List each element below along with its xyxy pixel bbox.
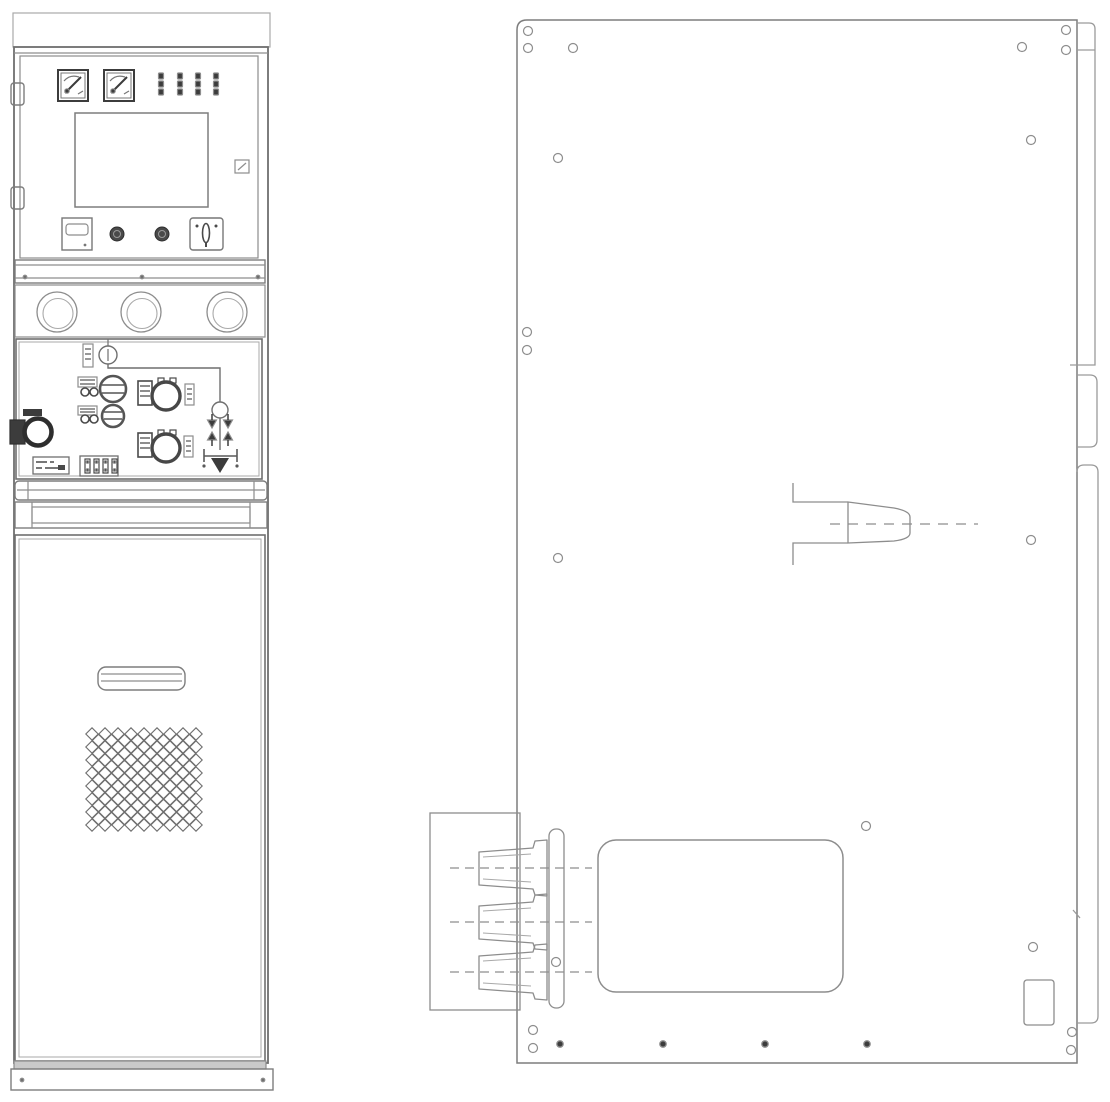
mesh-diamond — [151, 728, 163, 740]
mounting-hole — [529, 1044, 538, 1053]
screw-dot — [256, 275, 260, 279]
mesh-diamond — [92, 812, 104, 824]
status-label-1 — [78, 377, 97, 387]
pushbutton — [155, 227, 169, 241]
mesh-diamond — [144, 734, 156, 746]
mesh-diamond — [112, 741, 124, 753]
mesh-diamond — [183, 760, 195, 772]
operating-shaft-port — [100, 376, 126, 402]
mesh-diamond — [144, 747, 156, 759]
mesh-diamond — [112, 754, 124, 766]
arrow-down — [208, 420, 217, 428]
mesh-diamond — [190, 728, 202, 740]
label-plate-vertical — [83, 344, 93, 367]
mesh-diamond — [105, 760, 117, 772]
hinge — [11, 187, 24, 209]
mesh-diamond — [177, 793, 189, 805]
mesh-diamond — [99, 767, 111, 779]
terminal-dot — [113, 461, 116, 464]
ventilation-grille — [86, 728, 202, 831]
mesh-diamond — [105, 786, 117, 798]
viewing-window-inner — [127, 299, 157, 329]
mesh-diamond — [138, 819, 150, 831]
mounting-hole — [554, 554, 563, 563]
mesh-diamond — [190, 767, 202, 779]
mesh-diamond — [131, 773, 143, 785]
mesh-diamond — [99, 754, 111, 766]
mesh-diamond — [144, 799, 156, 811]
status-label-2 — [78, 406, 97, 415]
indicator-light — [159, 89, 164, 95]
rear-flange — [1070, 23, 1098, 1023]
mesh-diamond — [144, 760, 156, 772]
indicator-light — [196, 73, 201, 79]
mounting-hole — [1018, 43, 1027, 52]
mesh-diamond — [112, 767, 124, 779]
mesh-diamond — [138, 767, 150, 779]
mesh-diamond — [183, 799, 195, 811]
mesh-diamond — [118, 760, 130, 772]
mesh-diamond — [112, 793, 124, 805]
indicator-light — [159, 73, 164, 79]
mounting-hole — [1062, 26, 1071, 35]
front-view — [10, 13, 273, 1090]
mesh-diamond — [125, 767, 137, 779]
mesh-diamond — [138, 754, 150, 766]
screw-dot — [140, 275, 144, 279]
mesh-diamond — [86, 793, 98, 805]
mesh-diamond — [170, 786, 182, 798]
mounting-hole — [552, 958, 561, 967]
meter-tick — [78, 91, 83, 94]
operating-mechanism — [138, 378, 180, 410]
cabinet-base-edge — [14, 1061, 266, 1069]
mesh-diamond — [86, 754, 98, 766]
mounting-hole — [862, 822, 871, 831]
terminal-dot — [86, 469, 89, 472]
mesh-diamond — [112, 728, 124, 740]
viewing-window-inner — [213, 299, 243, 329]
mesh-diamond — [99, 780, 111, 792]
mesh-diamond — [177, 754, 189, 766]
indicator-light — [178, 89, 183, 95]
mesh-diamond — [177, 819, 189, 831]
key-switch — [190, 218, 223, 250]
mesh-diamond — [99, 819, 111, 831]
inspection-cover — [598, 840, 843, 992]
mesh-diamond — [86, 741, 98, 753]
operating-mechanism — [138, 430, 180, 462]
mesh-diamond — [86, 780, 98, 792]
mesh-diamond — [190, 741, 202, 753]
mesh-diamond — [86, 819, 98, 831]
mesh-diamond — [170, 812, 182, 824]
mounting-hole — [1062, 46, 1071, 55]
meter-hub — [65, 89, 69, 93]
mesh-diamond — [131, 760, 143, 772]
top-plate — [13, 13, 270, 47]
mounting-hole — [1067, 1046, 1076, 1055]
mesh-diamond — [99, 806, 111, 818]
arrow-down — [224, 420, 233, 428]
lock-insert-mark — [238, 163, 246, 170]
mesh-diamond — [138, 793, 150, 805]
mesh-diamond — [92, 786, 104, 798]
lower-door-inner — [19, 539, 261, 1057]
mesh-diamond — [118, 812, 130, 824]
fixing-dot — [864, 1041, 870, 1047]
mesh-diamond — [144, 773, 156, 785]
mesh-diamond — [170, 747, 182, 759]
front-band — [15, 260, 265, 283]
mesh-diamond — [151, 780, 163, 792]
cable-bushing-centerlines — [450, 868, 592, 972]
mesh-diamond — [164, 793, 176, 805]
earth-symbol — [211, 458, 229, 473]
screw-dot — [261, 1078, 265, 1082]
terminal-dot — [86, 461, 89, 464]
indicator-light — [214, 89, 219, 95]
mesh-diamond — [190, 793, 202, 805]
door-hinges — [11, 83, 24, 209]
mesh-diamond — [170, 734, 182, 746]
mesh-diamond — [105, 799, 117, 811]
cable-compartment-box — [430, 813, 520, 1010]
arrow-up — [208, 432, 217, 440]
mesh-diamond — [157, 812, 169, 824]
status-lamp — [81, 415, 89, 423]
energy-meter-display — [66, 224, 88, 235]
fixing-dot — [660, 1041, 666, 1047]
mesh-diamond — [170, 773, 182, 785]
side-bushing-cone — [848, 502, 910, 543]
terminal-strip — [80, 456, 118, 476]
arrow-up — [224, 432, 233, 440]
mesh-diamond — [170, 760, 182, 772]
mesh-diamond — [151, 806, 163, 818]
mesh-diamond — [125, 741, 137, 753]
drawing-canvas — [0, 0, 1110, 1102]
mesh-diamond — [112, 806, 124, 818]
mesh-diamond — [99, 728, 111, 740]
indicator-light — [178, 81, 183, 87]
status-lamp — [90, 388, 98, 396]
mesh-diamond — [157, 773, 169, 785]
mesh-diamond — [131, 734, 143, 746]
mesh-diamond — [144, 786, 156, 798]
mesh-diamond — [177, 806, 189, 818]
mesh-diamond — [92, 773, 104, 785]
indicator-light — [214, 81, 219, 87]
mounting-hole — [1029, 943, 1038, 952]
mesh-diamond — [144, 812, 156, 824]
mesh-diamond — [164, 741, 176, 753]
terminal-dot — [113, 469, 116, 472]
mesh-diamond — [118, 799, 130, 811]
mesh-diamond — [92, 799, 104, 811]
mesh-diamond — [105, 812, 117, 824]
pushbuttons — [110, 227, 169, 241]
viewing-window-inner — [43, 299, 73, 329]
terminal-dot — [104, 461, 107, 464]
mesh-diamond — [164, 728, 176, 740]
mounting-hole — [524, 27, 533, 36]
mesh-diamond — [125, 780, 137, 792]
terminal-dot — [95, 461, 98, 464]
mesh-diamond — [151, 767, 163, 779]
indicator-light — [159, 81, 164, 87]
mesh-diamond — [177, 780, 189, 792]
mesh-diamond — [138, 806, 150, 818]
mesh-diamond — [125, 754, 137, 766]
mesh-diamond — [112, 780, 124, 792]
mesh-diamond — [164, 754, 176, 766]
nameplate — [33, 457, 69, 474]
mesh-diamond — [131, 747, 143, 759]
cabinet-outline — [14, 47, 268, 1063]
hinge — [11, 83, 24, 105]
mesh-diamond — [138, 780, 150, 792]
handle-recess — [15, 481, 267, 528]
mesh-diamond — [157, 799, 169, 811]
mesh-diamond — [177, 728, 189, 740]
screw-dot — [20, 1078, 24, 1082]
panel-meters — [58, 70, 134, 101]
fixing-dot — [762, 1041, 768, 1047]
status-lamp — [90, 415, 98, 423]
mounting-hole — [529, 1026, 538, 1035]
side-panel-outline — [517, 20, 1077, 1063]
mesh-diamond — [164, 767, 176, 779]
mesh-diamond — [118, 773, 130, 785]
mesh-diamond — [92, 747, 104, 759]
mesh-diamond — [164, 780, 176, 792]
mesh-diamond — [112, 819, 124, 831]
cable-bushings — [479, 840, 547, 1000]
mesh-diamond — [170, 799, 182, 811]
mesh-diamond — [157, 747, 169, 759]
mounting-hole — [1027, 536, 1036, 545]
mesh-diamond — [151, 754, 163, 766]
mesh-diamond — [131, 812, 143, 824]
mesh-diamond — [190, 754, 202, 766]
cable-bushing-line — [483, 854, 531, 882]
mesh-diamond — [190, 806, 202, 818]
mesh-diamond — [138, 728, 150, 740]
mesh-diamond — [183, 812, 195, 824]
mounting-hole — [524, 44, 533, 53]
lower-door — [15, 535, 265, 1061]
plinth-screws — [20, 1078, 265, 1082]
mesh-diamond — [183, 747, 195, 759]
mesh-diamond — [125, 819, 137, 831]
viewing-windows — [37, 292, 247, 332]
terminal-dot — [95, 469, 98, 472]
mesh-diamond — [118, 747, 130, 759]
mesh-diamond — [118, 786, 130, 798]
mesh-diamond — [177, 741, 189, 753]
indicator-lights — [159, 73, 219, 95]
mesh-diamond — [131, 799, 143, 811]
mesh-diamond — [131, 786, 143, 798]
door-handle-slot — [98, 667, 185, 690]
mesh-diamond — [190, 819, 202, 831]
mesh-diamond — [190, 780, 202, 792]
mesh-diamond — [86, 806, 98, 818]
mimic-panel — [10, 339, 262, 479]
status-lamp — [81, 388, 89, 396]
bushing-mounting-plate — [549, 829, 564, 1008]
mesh-diamond — [92, 734, 104, 746]
mesh-diamond — [125, 806, 137, 818]
mesh-diamond — [138, 741, 150, 753]
meter-tick — [124, 91, 129, 94]
mesh-diamond — [157, 786, 169, 798]
mesh-diamond — [164, 806, 176, 818]
indicator-light — [196, 81, 201, 87]
mounting-holes — [523, 26, 1077, 1055]
mesh-diamond — [105, 747, 117, 759]
screw-dot — [23, 275, 27, 279]
earthing-branch — [202, 402, 238, 473]
mesh-diamond — [105, 734, 117, 746]
mesh-diamond — [99, 741, 111, 753]
pushbutton — [110, 227, 124, 241]
fixing-dot — [557, 1041, 563, 1047]
mesh-diamond — [86, 728, 98, 740]
mesh-diamond — [151, 793, 163, 805]
mesh-diamond — [157, 734, 169, 746]
mounting-hole — [554, 154, 563, 163]
mesh-diamond — [105, 773, 117, 785]
mounting-hole — [523, 346, 532, 355]
mesh-diamond — [151, 819, 163, 831]
mounting-hole — [1068, 1028, 1077, 1037]
mesh-diamond — [183, 734, 195, 746]
switchgear-drawing — [0, 0, 1110, 1102]
energy-meter-dot — [84, 244, 87, 247]
mesh-diamond — [183, 773, 195, 785]
mesh-diamond — [86, 767, 98, 779]
meter-hub — [111, 89, 115, 93]
mesh-diamond — [157, 760, 169, 772]
side-view — [430, 20, 1098, 1063]
mesh-diamond — [177, 767, 189, 779]
operating-shaft-port — [102, 405, 124, 427]
mesh-diamond — [118, 734, 130, 746]
indicator-light — [196, 89, 201, 95]
mesh-diamond — [164, 819, 176, 831]
mounting-hole — [523, 328, 532, 337]
plinth — [11, 1069, 273, 1090]
lcd-display-window — [75, 113, 208, 207]
mounting-hole — [569, 44, 578, 53]
mesh-diamond — [183, 786, 195, 798]
cable-bushing-line — [483, 908, 531, 936]
mesh-diamond — [125, 793, 137, 805]
bottom-slot — [1024, 980, 1054, 1025]
mesh-diamond — [125, 728, 137, 740]
terminal-dot — [104, 469, 107, 472]
indicator-light — [178, 73, 183, 79]
mesh-diamond — [99, 793, 111, 805]
mounting-hole — [1027, 136, 1036, 145]
mesh-diamond — [92, 760, 104, 772]
mesh-diamond — [151, 741, 163, 753]
indicator-light — [214, 73, 219, 79]
cable-bushing-line — [483, 958, 531, 986]
bottom-fixing-dots — [557, 1041, 870, 1047]
